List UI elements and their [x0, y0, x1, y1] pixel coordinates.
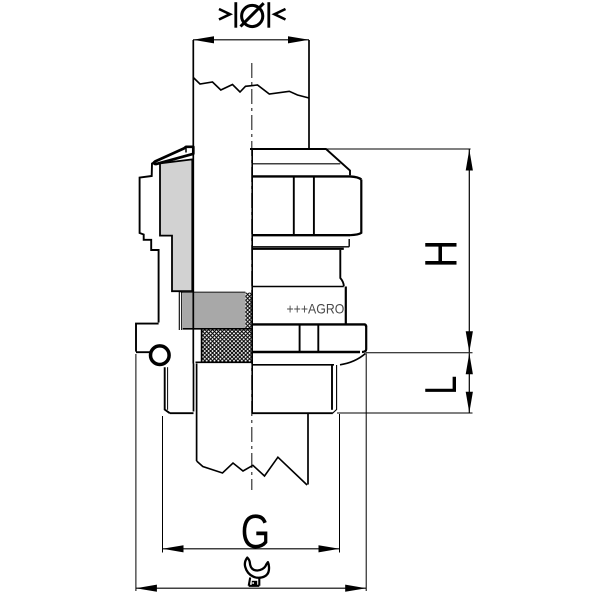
svg-text:G: G [241, 506, 270, 560]
svg-text:L: L [417, 376, 466, 395]
svg-text:H: H [416, 240, 466, 268]
svg-text:+++AGRO+: +++AGRO+ [287, 301, 352, 317]
